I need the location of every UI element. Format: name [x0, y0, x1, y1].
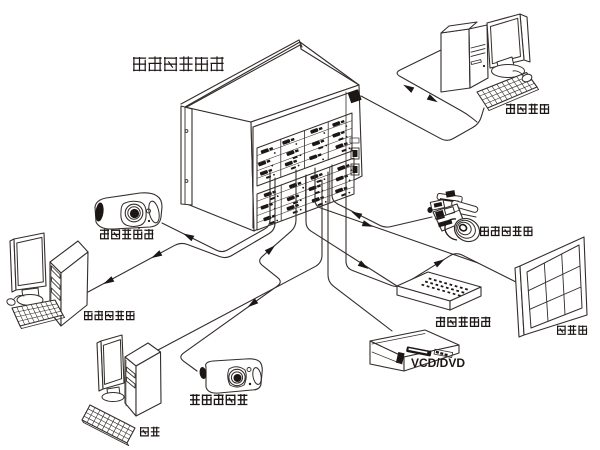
svg-text:VCD/DVD: VCD/DVD	[411, 356, 465, 370]
